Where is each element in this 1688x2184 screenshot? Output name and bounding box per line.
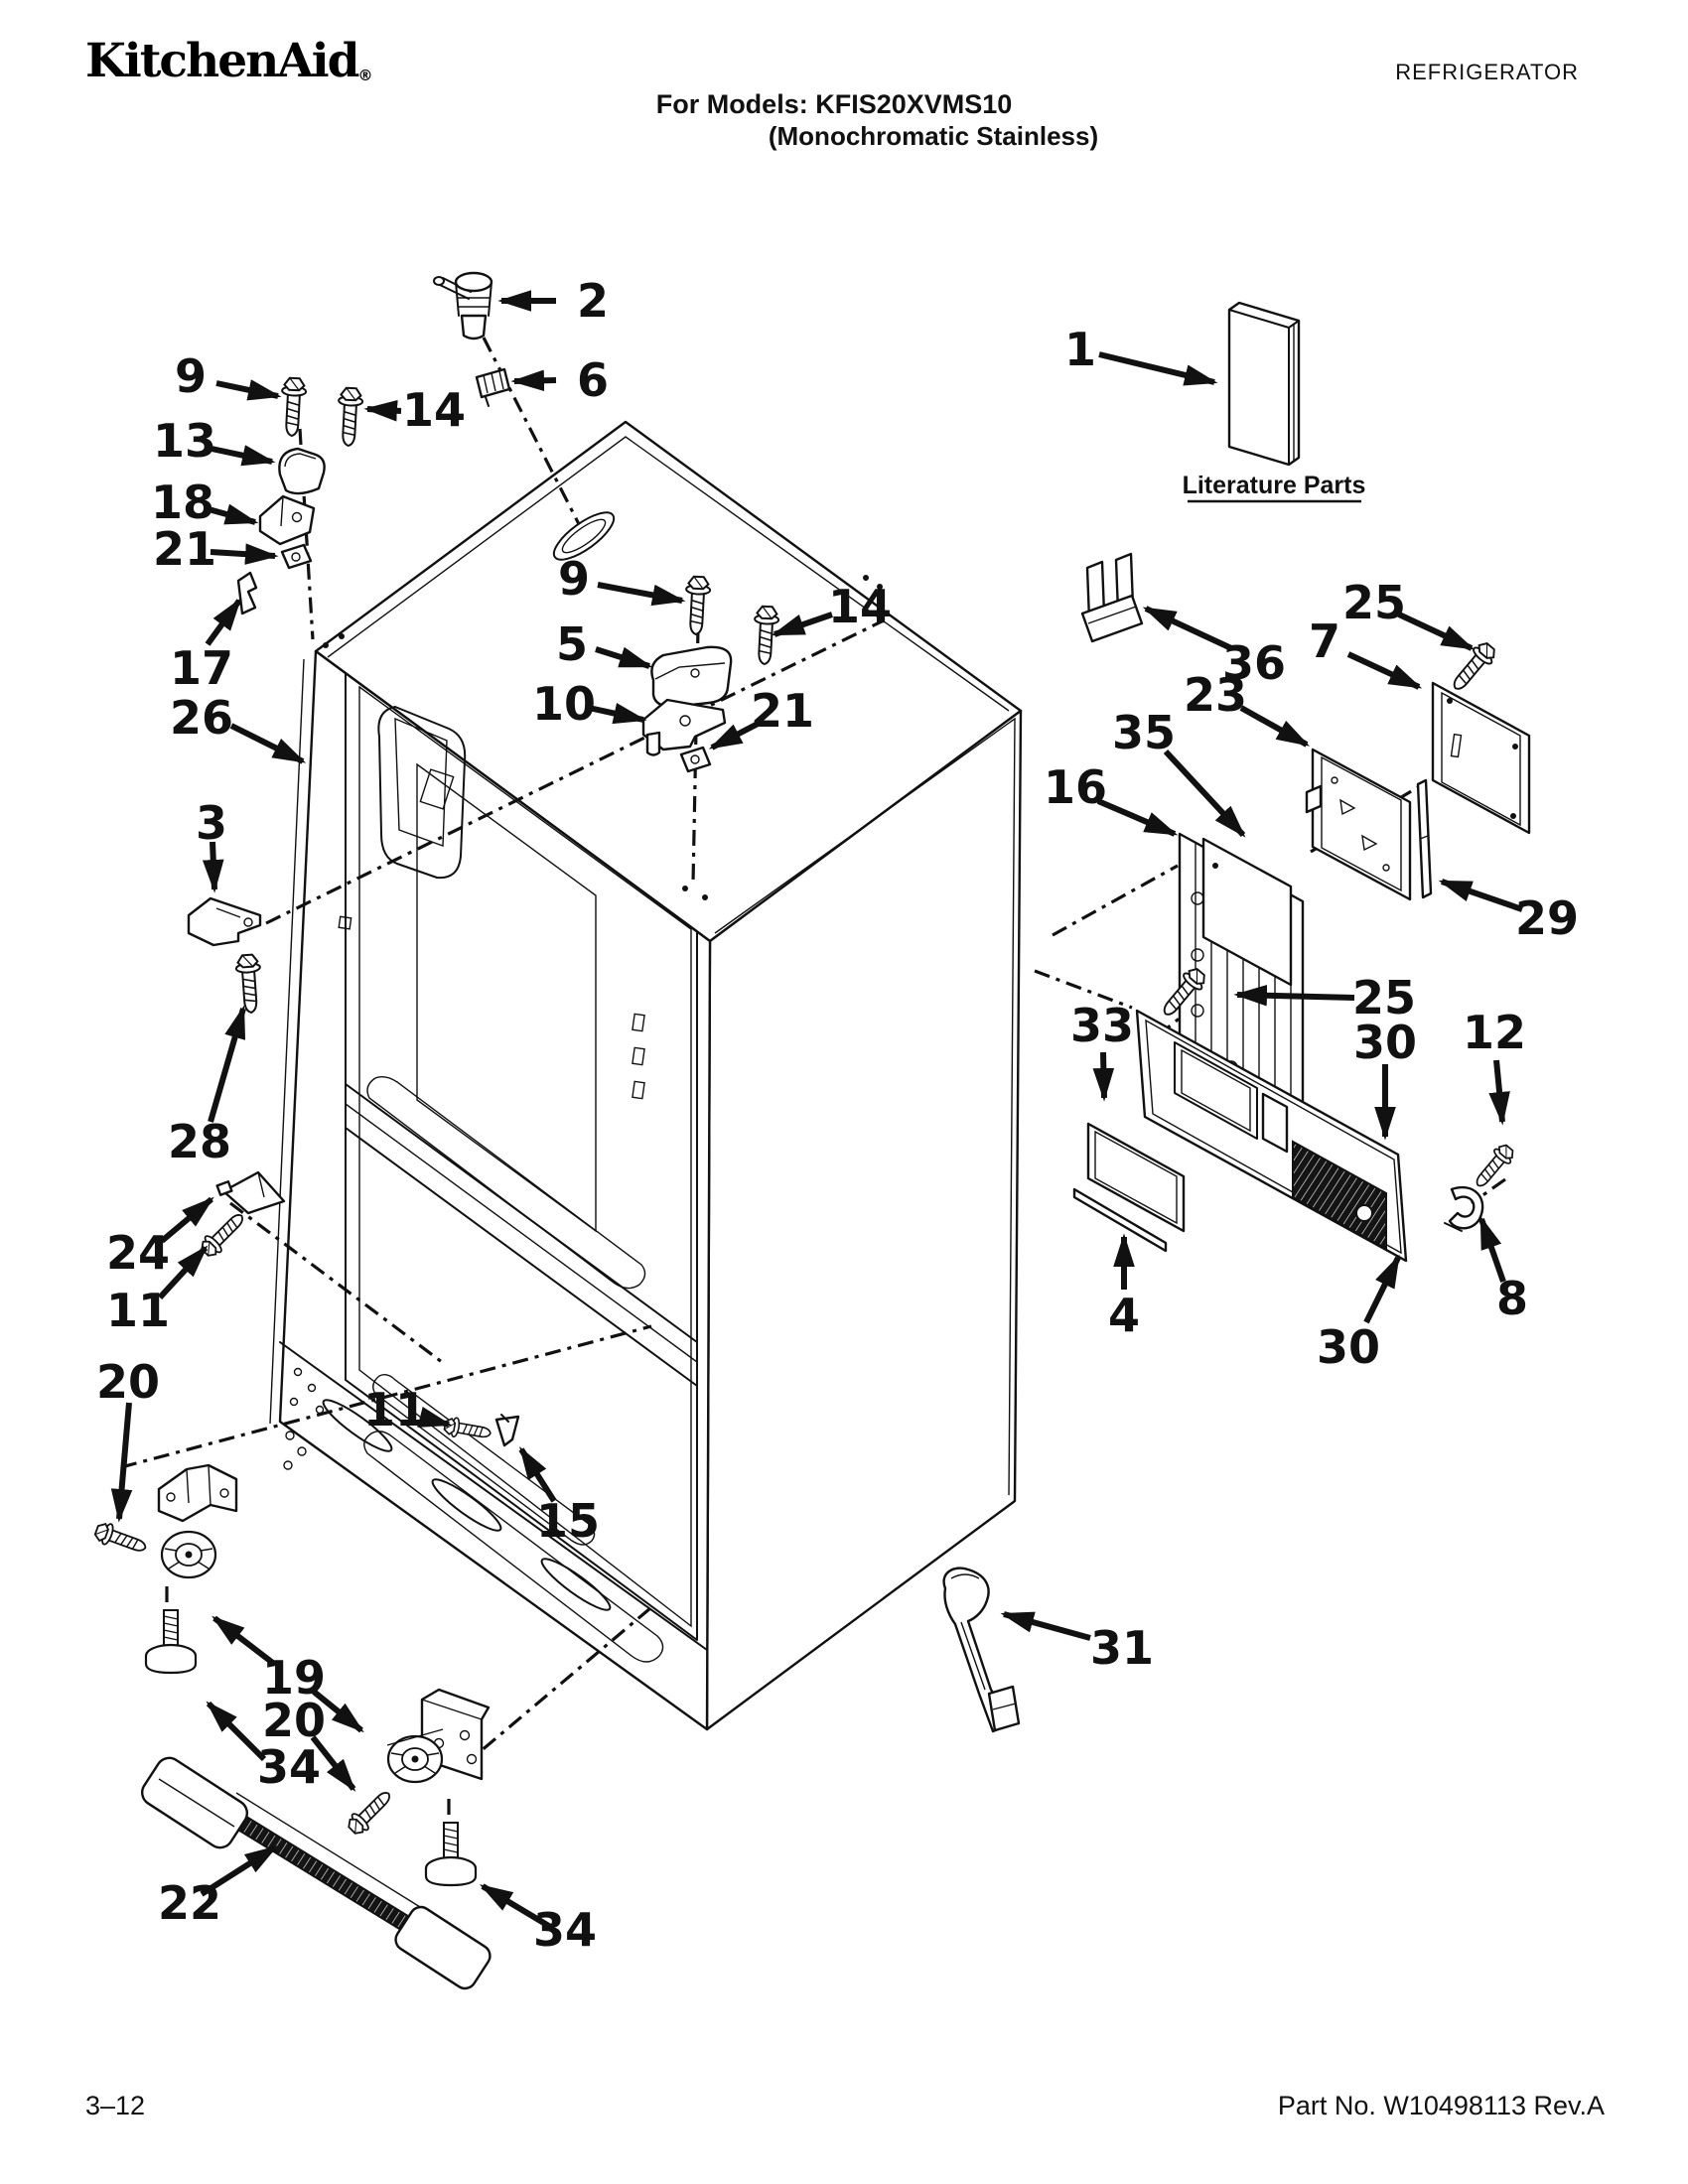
callout-22: 22 [158,1847,275,1930]
svg-text:33: 33 [1070,999,1134,1052]
svg-text:30: 30 [1317,1320,1380,1374]
svg-text:10: 10 [532,677,596,731]
svg-text:3: 3 [196,796,227,850]
part-gasket-frame-23 [1307,750,1410,899]
literature-parts-text: Literature Parts [1183,472,1366,499]
callout-24: 24 [106,1199,211,1280]
part-roller-front-left [159,1465,236,1577]
svg-text:4: 4 [1108,1289,1140,1342]
svg-text:23: 23 [1184,668,1247,722]
svg-text:7: 7 [1309,614,1340,668]
svg-text:28: 28 [168,1115,231,1168]
svg-text:21: 21 [153,522,216,576]
callout-21a: 21 [153,522,275,576]
literature-parts-label: Literature Parts [1183,472,1366,501]
callout-13: 13 [153,414,272,468]
parts-catalog-page: KitchenAid® REFRIGERATOR For Models: KFI… [0,0,1688,2184]
part-clamp-8 [1445,1187,1482,1231]
part-literature-book [1229,303,1299,465]
callout-4: 4 [1108,1237,1140,1342]
svg-text:35: 35 [1112,706,1176,759]
svg-text:6: 6 [577,353,609,407]
callout-3: 3 [196,796,227,889]
screw-12 [1471,1142,1517,1192]
svg-text:21: 21 [751,684,814,738]
svg-text:16: 16 [1044,760,1107,814]
part-seal-strip-29 [1418,780,1431,897]
svg-text:34: 34 [257,1740,321,1794]
callout-1: 1 [1064,323,1214,382]
svg-text:14: 14 [828,580,892,633]
callout-9a: 9 [175,349,278,403]
callout-20a: 20 [96,1355,160,1519]
part-bracket-3 [189,898,260,945]
svg-text:8: 8 [1496,1272,1528,1325]
screw-9a [280,377,307,436]
callout-12: 12 [1463,1006,1526,1122]
svg-text:15: 15 [536,1494,600,1548]
svg-text:9: 9 [558,552,590,606]
svg-text:11: 11 [363,1383,427,1436]
callout-31: 31 [1004,1614,1154,1675]
callout-30b: 30 [1317,1258,1398,1374]
svg-text:26: 26 [170,691,233,745]
svg-text:34: 34 [533,1903,597,1957]
part-hinge-cover-13 [279,449,324,493]
svg-text:20: 20 [96,1355,160,1409]
callout-14a: 14 [367,383,466,437]
callout-25a: 25 [1342,576,1472,648]
callout-34b: 34 [483,1886,597,1957]
callout-28: 28 [168,1009,243,1168]
svg-text:13: 13 [153,414,216,468]
part-hinge-cover-5 [651,647,731,707]
svg-text:25: 25 [1342,576,1406,629]
callout-17: 17 [170,601,239,695]
cabinet-body [270,422,1021,1729]
callout-30a: 30 [1353,1016,1417,1137]
part-foot-left [146,1610,196,1673]
part-bracket-36 [1082,554,1142,641]
part-evap-cover-panel-7 [1433,683,1529,833]
svg-text:29: 29 [1515,891,1579,945]
svg-text:22: 22 [158,1876,221,1930]
part-clip-17 [238,573,256,614]
part-drain-bracket-24 [217,1172,284,1213]
callout-8: 8 [1481,1219,1528,1325]
svg-text:9: 9 [175,349,207,403]
callout-6: 6 [514,353,609,407]
svg-text:18: 18 [151,476,214,529]
screw-20a [93,1520,149,1558]
svg-text:2: 2 [577,274,609,328]
part-water-valve [434,273,492,339]
part-roller-front-right [387,1690,489,1782]
callout-18: 18 [151,476,255,529]
svg-text:5: 5 [556,617,588,671]
screw-25a [1447,639,1499,696]
screw-28 [235,954,263,1014]
part-hinge-shim-21a [282,545,311,568]
part-tube-clamp [477,369,509,406]
screw-14a [337,387,363,446]
exploded-view-diagram: Literature Parts [0,0,1688,2184]
svg-text:31: 31 [1090,1621,1154,1675]
screw-20b [345,1786,396,1838]
callout-2: 2 [501,274,609,328]
part-foot-right [426,1823,476,1885]
callout-16: 16 [1044,760,1175,834]
callout-26: 26 [170,691,303,761]
callout-33: 33 [1070,999,1134,1098]
callout-23: 23 [1184,668,1307,745]
svg-text:20: 20 [262,1694,326,1747]
callout-29: 29 [1442,882,1579,945]
part-water-tube-31 [944,1569,1019,1731]
svg-text:12: 12 [1463,1006,1526,1059]
svg-text:17: 17 [170,641,233,695]
svg-text:14: 14 [402,383,466,437]
svg-text:1: 1 [1064,323,1096,376]
svg-text:30: 30 [1353,1016,1417,1069]
svg-text:24: 24 [106,1226,170,1280]
svg-text:11: 11 [106,1284,170,1337]
